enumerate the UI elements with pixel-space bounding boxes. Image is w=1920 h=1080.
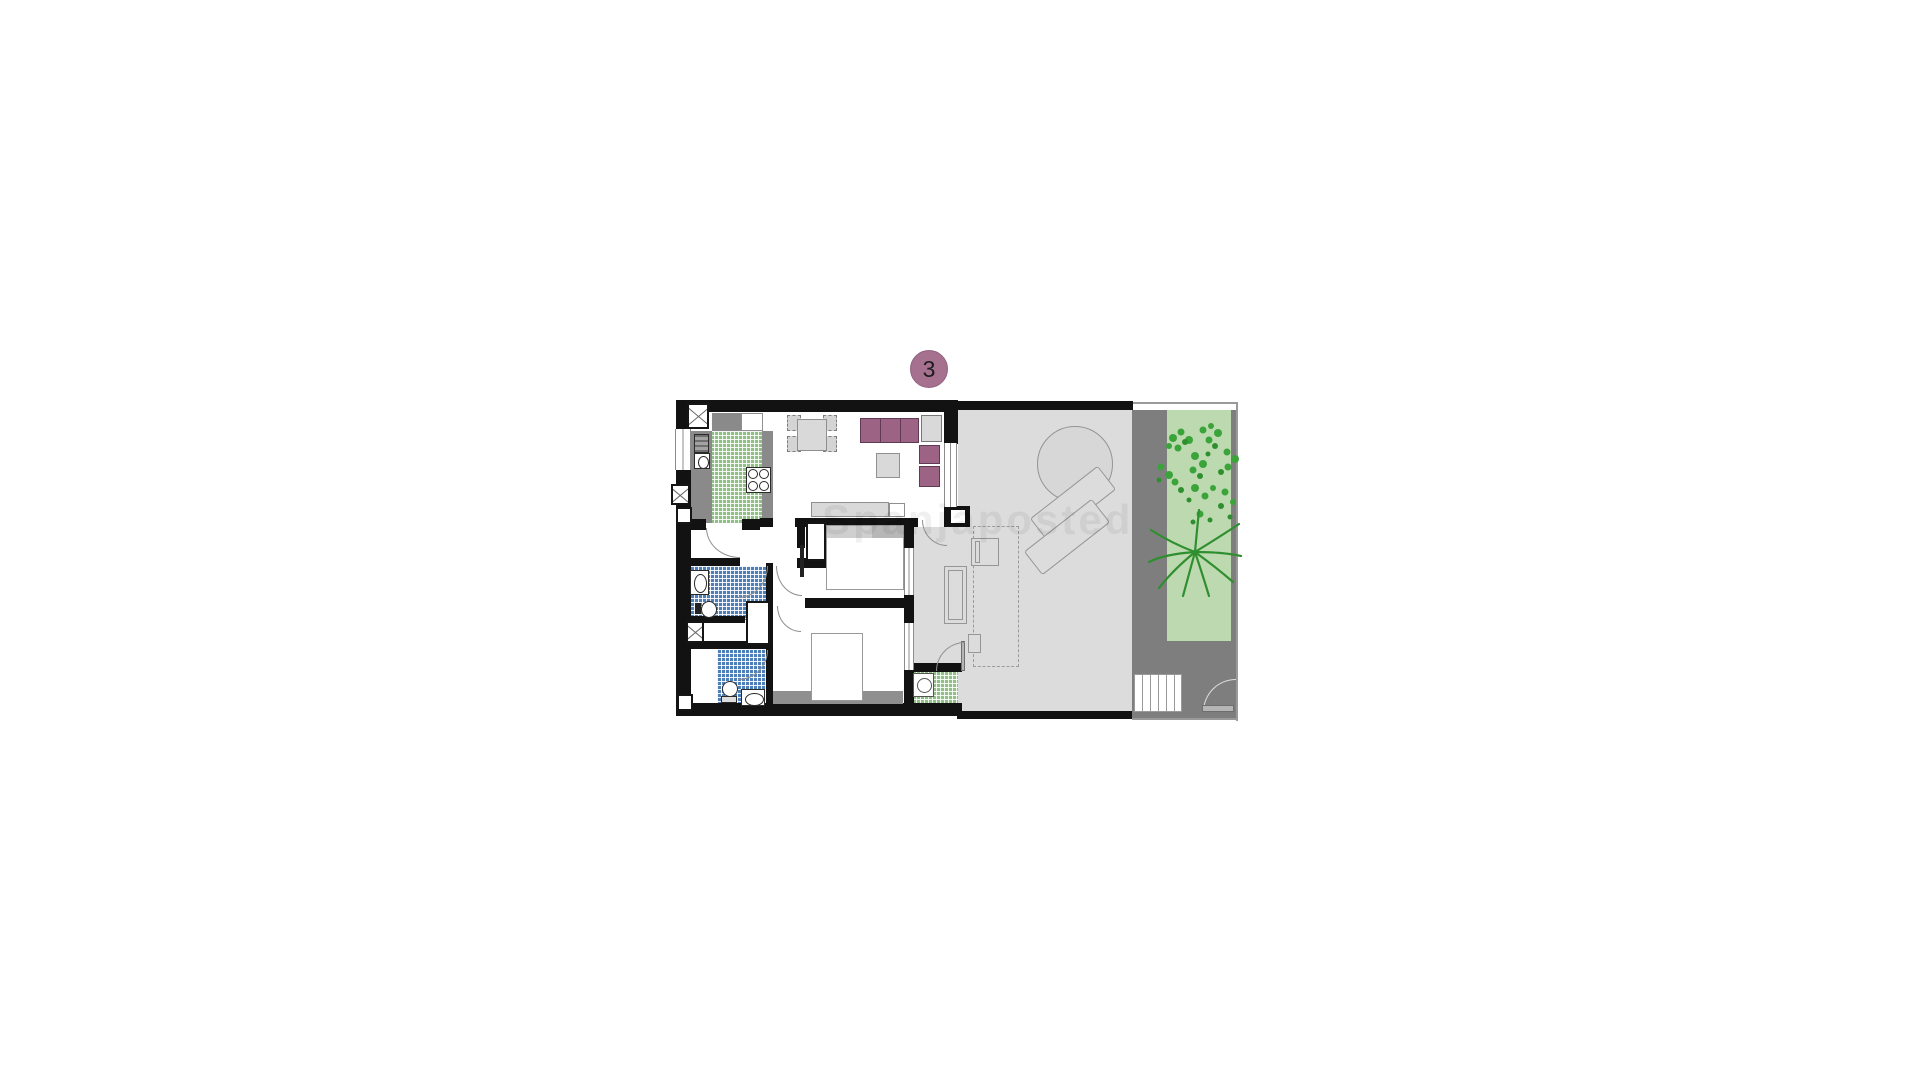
shaft-kitchen-icon (671, 484, 690, 505)
dining-table (797, 419, 827, 451)
garden-plant-icon (1145, 412, 1243, 602)
door-arc-bedroom1 (776, 566, 802, 596)
window-bedroom1 (904, 548, 914, 595)
burner-icon (759, 481, 769, 491)
boundary-top (1133, 402, 1238, 404)
wall-bedroom-divider (805, 598, 912, 608)
kitchen-counter-appliance (741, 413, 763, 431)
burner-icon (748, 481, 758, 491)
washer-drum (917, 678, 932, 693)
wall-bedroom1-left (797, 518, 805, 548)
shaft-entry-icon (687, 403, 709, 429)
door-arc-kitchen (706, 528, 740, 558)
washing-machine-icon (913, 673, 934, 697)
hall-closet (746, 601, 770, 645)
sink-basin (698, 456, 709, 469)
watermark: Spanjaposted (822, 496, 1133, 544)
toilet-tank (721, 696, 737, 703)
toilet-bathroom1-icon (695, 600, 716, 617)
exterior-door-leaf (1202, 705, 1234, 712)
door-arc-bedroom2 (777, 606, 801, 632)
wall-bottom (676, 703, 962, 716)
side-table (921, 415, 942, 442)
window-bedroom2 (904, 623, 914, 670)
armchair-2 (919, 466, 940, 487)
stove-icon (746, 467, 771, 493)
toilet-bowl (701, 601, 717, 618)
outdoor-stool (968, 634, 981, 653)
wall-hall-top-a (760, 518, 773, 527)
outdoor-table-inner (948, 570, 963, 620)
toilet-bathroom2-icon (721, 681, 738, 704)
duct-box (676, 507, 692, 524)
wall-living-right (944, 400, 958, 444)
wall-bathroom1-top (685, 558, 740, 566)
wall-terrace-bottom (957, 711, 1132, 719)
kitchen-sink-icon (694, 453, 710, 469)
fridge-icon (694, 434, 709, 453)
outdoor-table (944, 566, 967, 624)
toilet-bowl (722, 681, 738, 697)
wall-top (676, 400, 958, 412)
stairs (1134, 674, 1182, 712)
sofa-cushion-divider (880, 419, 881, 442)
bed-bedroom2 (811, 633, 863, 701)
unit-number-badge: 3 (910, 350, 948, 388)
basin-oval (694, 574, 707, 593)
basin-oval (745, 693, 764, 706)
burner-icon (759, 469, 769, 479)
boundary-bottom (1132, 718, 1238, 720)
wall-kitchen-bottom-b (742, 519, 760, 530)
kitchen-counter-top (712, 413, 741, 431)
armchair-1 (919, 445, 940, 464)
floorplan-page: 3 (0, 0, 1920, 1080)
shaft-bathroom-icon (686, 621, 704, 643)
sofa-cushion-divider (900, 419, 901, 442)
burner-icon (748, 469, 758, 479)
washbasin-bathroom2-icon (741, 689, 765, 706)
washbasin-bathroom1-icon (690, 570, 709, 595)
corner-pillar-box (677, 694, 693, 711)
armchair-back (975, 541, 980, 563)
wall-terrace-top (957, 401, 1133, 410)
coffee-table (876, 453, 900, 478)
sofa (860, 418, 919, 443)
window-kitchen (675, 429, 691, 470)
